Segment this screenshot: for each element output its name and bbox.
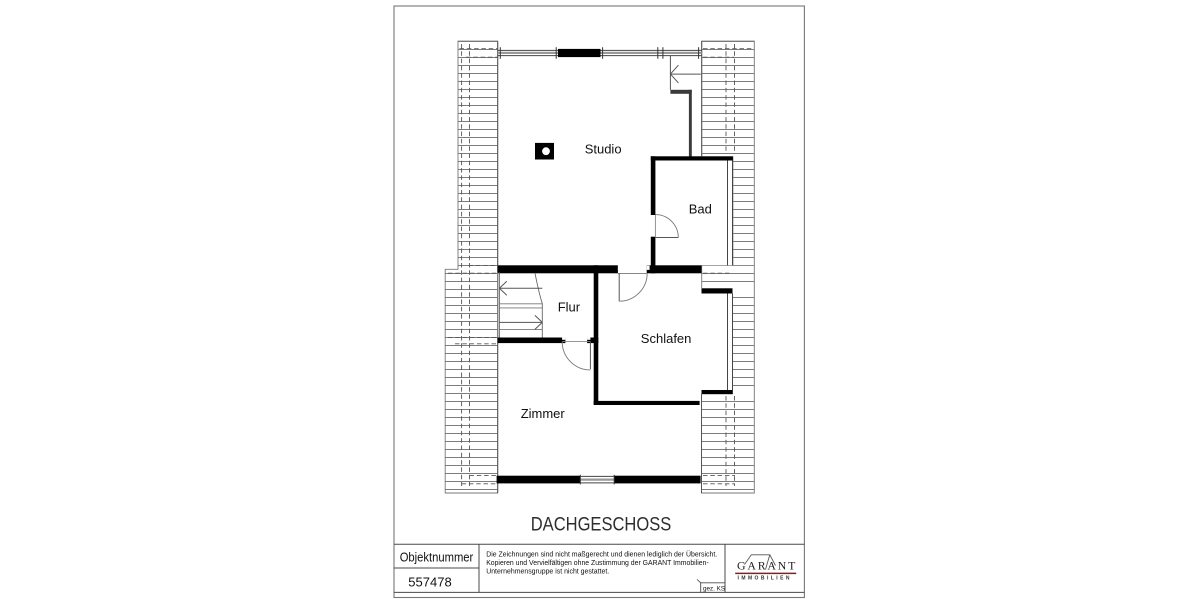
svg-text:Zimmer: Zimmer (521, 406, 566, 421)
svg-text:IMMOBILIEN: IMMOBILIEN (738, 575, 790, 581)
svg-text:Flur: Flur (558, 299, 581, 314)
svg-text:557478: 557478 (408, 575, 451, 590)
svg-text:Studio: Studio (585, 142, 622, 157)
svg-text:Schlafen: Schlafen (641, 331, 692, 346)
svg-text:gez. KS: gez. KS (703, 585, 725, 592)
svg-text:DACHGESCHOSS: DACHGESCHOSS (531, 515, 672, 536)
svg-text:Bad: Bad (689, 202, 712, 217)
svg-text:Unternehmensgruppe ist nicht g: Unternehmensgruppe ist nicht gestattet. (486, 567, 609, 576)
svg-text:Objektnummer: Objektnummer (400, 550, 474, 565)
